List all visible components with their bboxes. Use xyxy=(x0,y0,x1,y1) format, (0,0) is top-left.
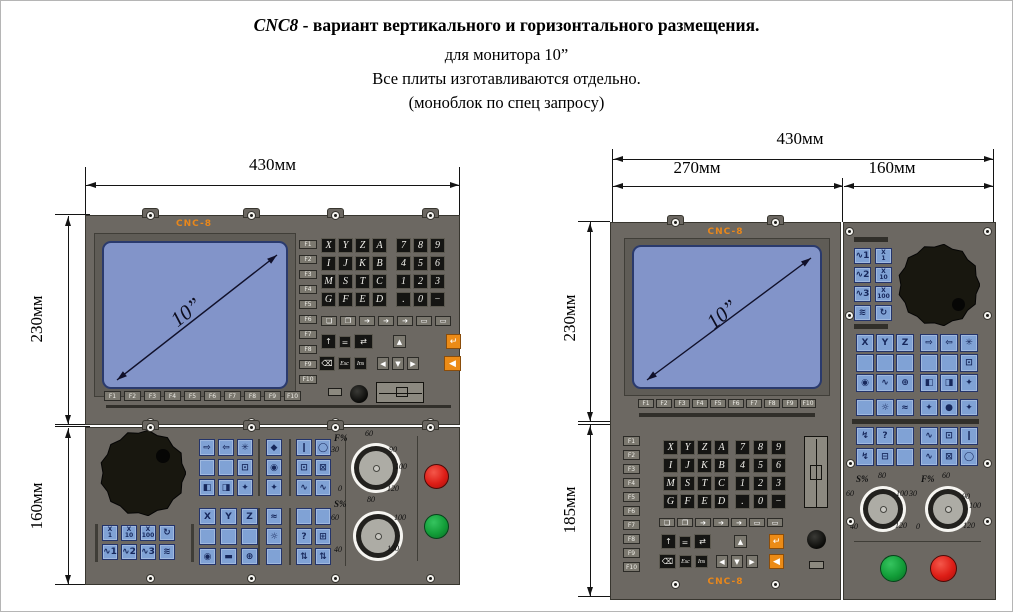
dial-tick: 80 xyxy=(878,471,886,480)
soft-key[interactable]: F10 xyxy=(284,391,301,401)
edit-key[interactable]: ➔ xyxy=(695,518,711,527)
soft-key[interactable]: F10 xyxy=(299,375,317,384)
handwheel-step-key[interactable]: X10 xyxy=(875,267,892,283)
axis-select-key[interactable]: Y xyxy=(220,508,237,525)
handwheel-step-key[interactable]: ∿2 xyxy=(121,544,137,560)
divider-bar xyxy=(854,324,888,329)
backspace-key[interactable]: ⌫ xyxy=(659,554,676,569)
group-separator xyxy=(417,436,418,561)
cursor-left-key[interactable]: ◀ xyxy=(716,555,728,568)
dim-line xyxy=(68,216,69,424)
machine-function-key[interactable]: ◉ xyxy=(266,459,282,476)
toggle-key[interactable]: ⇄ xyxy=(694,534,711,549)
edit-key[interactable]: ▭ xyxy=(749,518,765,527)
soft-key[interactable]: F5 xyxy=(184,391,201,401)
function-group-c: ❙◯⊡⊠∿∿ xyxy=(296,439,331,496)
indicator-window xyxy=(809,561,824,569)
axis-select-key[interactable]: X xyxy=(856,334,874,352)
machine-function-key[interactable]: ? xyxy=(296,528,312,545)
machine-function-key[interactable]: ☼ xyxy=(876,399,894,416)
letter-key[interactable]: T xyxy=(355,274,370,289)
handwheel-step-key[interactable]: X100 xyxy=(875,286,892,302)
cursor-right-key[interactable]: ▶ xyxy=(746,555,758,568)
machine-function-key[interactable]: ⊟ xyxy=(876,448,894,466)
machine-function-key[interactable] xyxy=(856,399,874,416)
round-button[interactable] xyxy=(350,385,368,403)
screw-icon xyxy=(331,574,340,583)
machine-function-key[interactable]: ∿ xyxy=(920,427,938,445)
number-key[interactable]: 0 xyxy=(753,494,768,509)
number-key[interactable]: 0 xyxy=(413,292,428,307)
group-separator xyxy=(258,439,260,496)
axis-select-key[interactable] xyxy=(876,354,894,372)
letter-key[interactable]: S xyxy=(338,274,353,289)
soft-key[interactable]: F5 xyxy=(299,300,317,309)
machine-function-key[interactable]: ⊠ xyxy=(940,448,958,466)
soft-key[interactable]: F4 xyxy=(299,285,317,294)
soft-key[interactable]: F8 xyxy=(299,345,317,354)
escape-key[interactable]: Esc xyxy=(679,555,692,568)
dial-tick: 90 xyxy=(389,445,397,454)
soft-key[interactable]: F5 xyxy=(623,492,640,502)
start-button[interactable] xyxy=(880,555,907,582)
equals-key[interactable]: = xyxy=(339,336,351,348)
handwheel-step-key[interactable]: X1 xyxy=(102,525,118,541)
input-key[interactable]: ◀ xyxy=(769,554,784,569)
floppy-drive[interactable] xyxy=(376,382,424,403)
arrowhead-icon xyxy=(450,182,459,188)
machine-function-key[interactable] xyxy=(199,459,215,476)
dim-height-keyboard-horizontal: 185мм xyxy=(560,473,580,547)
cursor-down-key[interactable]: ▼ xyxy=(731,555,743,568)
drive-slider xyxy=(396,387,408,397)
dial-tick: 80 xyxy=(367,495,375,504)
number-key[interactable]: 2 xyxy=(753,476,768,491)
axis-select-key[interactable]: Z xyxy=(896,334,914,352)
input-key[interactable]: ◀ xyxy=(444,356,461,371)
machine-function-key[interactable]: ⊠ xyxy=(315,459,331,476)
soft-key[interactable]: F8 xyxy=(623,534,640,544)
dial-tick: 120 xyxy=(387,484,399,493)
axis-select-key[interactable]: ∿ xyxy=(876,374,894,392)
soft-key[interactable]: F7 xyxy=(299,330,317,339)
letter-key[interactable]: Y xyxy=(680,440,695,455)
soft-key[interactable]: F9 xyxy=(299,360,317,369)
number-key[interactable]: 4 xyxy=(735,458,750,473)
letter-key[interactable]: I xyxy=(663,458,678,473)
edit-key[interactable]: ❐ xyxy=(340,316,356,326)
soft-key[interactable]: F9 xyxy=(782,399,798,408)
machine-function-key[interactable]: ❙ xyxy=(960,427,978,445)
group-separator xyxy=(258,508,260,565)
handwheel-step-key[interactable]: ↻ xyxy=(875,305,892,321)
letter-key[interactable]: C xyxy=(714,476,729,491)
horizontal-main-panel: CNC-8 10” F1F2F3F4F5F6F7F8F9F10 F1F2F3F4… xyxy=(610,222,841,600)
screw-icon xyxy=(983,311,992,320)
edit-key[interactable]: ▭ xyxy=(767,518,783,527)
number-key[interactable]: 7 xyxy=(396,238,411,253)
number-key[interactable]: 8 xyxy=(413,238,428,253)
letter-key[interactable]: A xyxy=(372,238,387,253)
axis-select-key[interactable] xyxy=(220,528,237,545)
dim-height-keyboard-vertical: 160мм xyxy=(27,469,47,543)
dial-tick: 30 xyxy=(909,489,917,498)
machine-function-key[interactable] xyxy=(266,548,282,565)
soft-key[interactable]: F1 xyxy=(638,399,654,408)
page-up-key[interactable]: ▲ xyxy=(393,335,406,348)
machine-function-key[interactable]: ⇨ xyxy=(920,334,938,352)
function-group-f: ?⊞⇅⇅ xyxy=(296,508,331,565)
axis-select-key[interactable]: ◉ xyxy=(199,548,216,565)
letter-key[interactable]: T xyxy=(697,476,712,491)
screw-icon xyxy=(983,517,992,526)
machine-function-key[interactable]: ◯ xyxy=(960,448,978,466)
machine-function-key[interactable]: ∿ xyxy=(315,479,331,496)
cursor-right-key[interactable]: ▶ xyxy=(407,357,419,370)
edit-key[interactable]: ➔ xyxy=(397,316,413,326)
soft-key[interactable]: F9 xyxy=(264,391,281,401)
handwheel-knob[interactable] xyxy=(100,430,186,521)
stop-button[interactable] xyxy=(930,555,957,582)
axis-select-key[interactable] xyxy=(199,528,216,545)
axis-select-key[interactable]: Y xyxy=(876,334,894,352)
title-line-4: (моноблок по спец запросу) xyxy=(0,91,1013,115)
brand-label: CNC-8 xyxy=(611,227,840,237)
machine-function-key[interactable]: ✦ xyxy=(920,399,938,416)
extension-line xyxy=(993,149,994,222)
dial-tick: 100 xyxy=(969,501,981,510)
handwheel-step-key[interactable]: ∿2 xyxy=(854,267,871,283)
machine-function-key[interactable]: ⇦ xyxy=(940,334,958,352)
soft-key[interactable]: F4 xyxy=(623,478,640,488)
machine-function-key[interactable]: ✳ xyxy=(960,334,978,352)
letter-key[interactable]: Z xyxy=(697,440,712,455)
screw-icon xyxy=(146,211,155,220)
number-key[interactable]: 5 xyxy=(753,458,768,473)
letter-key[interactable]: S xyxy=(680,476,695,491)
machine-function-key[interactable]: ↯ xyxy=(856,427,874,445)
letter-key[interactable]: M xyxy=(663,476,678,491)
machine-function-key[interactable]: ? xyxy=(876,427,894,445)
machine-function-key[interactable]: ☼ xyxy=(266,528,282,545)
soft-key[interactable]: F1 xyxy=(104,391,121,401)
number-key[interactable]: − xyxy=(430,292,445,307)
soft-key[interactable]: F2 xyxy=(124,391,141,401)
machine-function-key[interactable]: ⇦ xyxy=(218,439,234,456)
soft-key[interactable]: F10 xyxy=(623,562,640,572)
cursor-up-key[interactable]: ↑ xyxy=(321,334,336,349)
machine-function-key[interactable]: ⊡ xyxy=(940,427,958,445)
machine-function-key[interactable] xyxy=(296,508,312,525)
axis-select-key[interactable]: ◉ xyxy=(856,374,874,392)
arrowhead-icon xyxy=(87,182,96,188)
escape-key[interactable]: Esc xyxy=(338,357,351,370)
dim-line xyxy=(86,185,459,186)
soft-key[interactable]: F7 xyxy=(224,391,241,401)
number-key[interactable]: 3 xyxy=(771,476,786,491)
machine-function-key[interactable]: ⊡ xyxy=(960,354,978,372)
handwheel-step-key[interactable]: ≋ xyxy=(159,544,175,560)
number-key[interactable]: 1 xyxy=(735,476,750,491)
insert-key[interactable]: Ins xyxy=(695,555,708,568)
machine-function-key[interactable]: ● xyxy=(940,399,958,416)
edit-key[interactable]: ▭ xyxy=(416,316,432,326)
handwheel-step-key[interactable]: ↻ xyxy=(159,525,175,541)
soft-key[interactable]: F3 xyxy=(144,391,161,401)
machine-function-key[interactable]: ◧ xyxy=(199,479,215,496)
axis-select-key[interactable] xyxy=(896,354,914,372)
handwheel-step-key[interactable]: ∿3 xyxy=(140,544,156,560)
machine-function-key[interactable]: ∿ xyxy=(920,448,938,466)
soft-key[interactable]: F1 xyxy=(623,436,640,446)
dial-tick: 60 xyxy=(331,513,339,522)
title-model: CNC8 xyxy=(254,15,299,35)
group-separator xyxy=(854,541,981,542)
soft-key[interactable]: F7 xyxy=(623,520,640,530)
dial-label: S% xyxy=(856,474,869,484)
machine-function-key[interactable]: ◨ xyxy=(940,374,958,392)
diagram-canvas: CNC8 - вариант вертикального и горизонта… xyxy=(0,0,1013,612)
machine-function-key[interactable]: ∿ xyxy=(296,479,312,496)
soft-key[interactable]: F10 xyxy=(800,399,816,408)
machine-function-key[interactable] xyxy=(896,427,914,445)
soft-key[interactable]: F6 xyxy=(728,399,744,408)
letter-key[interactable]: E xyxy=(697,494,712,509)
letter-key[interactable]: A xyxy=(714,440,729,455)
letter-key[interactable]: Y xyxy=(338,238,353,253)
dial-tick: 60 xyxy=(365,429,373,438)
letter-key[interactable]: K xyxy=(697,458,712,473)
machine-function-key[interactable]: ✦ xyxy=(960,399,978,416)
machine-function-key[interactable] xyxy=(218,459,234,476)
letter-key[interactable]: K xyxy=(355,256,370,271)
machine-function-key[interactable]: ◯ xyxy=(315,439,331,456)
number-key[interactable]: 5 xyxy=(413,256,428,271)
cursor-down-key[interactable]: ▼ xyxy=(392,357,404,370)
dial-tick: 100 xyxy=(896,489,908,498)
axis-select-key[interactable]: ⊕ xyxy=(896,374,914,392)
dial-tick: 100 xyxy=(394,513,406,522)
machine-function-key[interactable]: ⊞ xyxy=(315,528,331,545)
extension-line xyxy=(578,596,610,597)
letter-key[interactable]: Z xyxy=(355,238,370,253)
edit-key[interactable]: ❏ xyxy=(659,518,675,527)
divider-bar xyxy=(854,237,888,242)
arrowhead-icon xyxy=(587,426,593,435)
screw-icon xyxy=(426,423,435,432)
handwheel-step-key[interactable]: ≋ xyxy=(854,305,871,321)
soft-key[interactable]: F4 xyxy=(692,399,708,408)
machine-function-key[interactable]: ⊡ xyxy=(237,459,253,476)
letter-key[interactable]: F xyxy=(680,494,695,509)
handwheel-step-key[interactable]: X1 xyxy=(875,248,892,264)
machine-function-key[interactable]: ≈ xyxy=(266,508,282,525)
brand-label: CNC-8 xyxy=(94,219,294,229)
number-key[interactable]: 1 xyxy=(396,274,411,289)
fkey-column: F1F2F3F4F5F6F7F8F9F10 xyxy=(623,436,640,572)
toggle-key[interactable]: ⇄ xyxy=(354,334,373,349)
dim-line xyxy=(590,425,591,596)
soft-key[interactable]: F5 xyxy=(710,399,726,408)
vertical-upper-panel: CNC-8 10” F1F2F3F4F5F6F7F8F9F10 XYZAIJKB… xyxy=(85,215,460,425)
function-group-a: ⇨⇦✳⊡◧◨✦ xyxy=(920,334,978,392)
edit-key[interactable]: ❏ xyxy=(321,316,337,326)
screw-icon xyxy=(146,423,155,432)
machine-function-key[interactable]: ↯ xyxy=(856,448,874,466)
screen-bezel: 10” xyxy=(624,238,830,396)
letter-key[interactable]: F xyxy=(338,292,353,307)
screw-icon xyxy=(331,423,340,432)
edit-key[interactable]: ➔ xyxy=(713,518,729,527)
edit-key[interactable]: ➔ xyxy=(359,316,375,326)
letter-key[interactable]: E xyxy=(355,292,370,307)
round-button[interactable] xyxy=(807,530,826,549)
machine-function-key[interactable]: ⇨ xyxy=(199,439,215,456)
letter-key[interactable]: G xyxy=(663,494,678,509)
insert-key[interactable]: Ins xyxy=(354,357,367,370)
axis-select-key[interactable]: X xyxy=(199,508,216,525)
soft-key[interactable]: F1 xyxy=(299,240,317,249)
handwheel-step-key[interactable]: X10 xyxy=(121,525,137,541)
number-key[interactable]: 3 xyxy=(430,274,445,289)
arrowhead-icon xyxy=(984,183,993,189)
letter-key[interactable]: J xyxy=(680,458,695,473)
axis-select-key[interactable]: ⊕ xyxy=(241,548,258,565)
number-key[interactable]: . xyxy=(735,494,750,509)
letter-key[interactable]: G xyxy=(321,292,336,307)
machine-function-key[interactable] xyxy=(940,354,958,372)
number-key[interactable]: 7 xyxy=(735,440,750,455)
axis-key-group: XYZ◉▬⊕ xyxy=(199,508,258,565)
handwheel-step-key[interactable]: ∿1 xyxy=(854,248,871,264)
soft-key[interactable]: F6 xyxy=(623,506,640,516)
soft-key[interactable]: F6 xyxy=(204,391,221,401)
title-line-1: CNC8 - вариант вертикального и горизонта… xyxy=(0,15,1013,36)
machine-function-key[interactable]: ❙ xyxy=(296,439,312,456)
soft-key[interactable]: F3 xyxy=(623,464,640,474)
machine-function-key[interactable]: ✦ xyxy=(266,479,282,496)
number-key[interactable]: 2 xyxy=(413,274,428,289)
number-key[interactable]: . xyxy=(396,292,411,307)
soft-key[interactable]: F4 xyxy=(164,391,181,401)
fkey-row: F1F2F3F4F5F6F7F8F9F10 xyxy=(104,391,301,401)
handwheel-step-key[interactable]: ∿3 xyxy=(854,286,871,302)
axis-select-key[interactable] xyxy=(241,528,258,545)
handwheel-step-key[interactable]: ∿1 xyxy=(102,544,118,560)
machine-function-key[interactable]: ✳ xyxy=(237,439,253,456)
machine-function-key[interactable]: ◧ xyxy=(920,374,938,392)
handwheel-keys: X1X10X100↻∿1∿2∿3≋ xyxy=(102,525,175,560)
axis-select-key[interactable] xyxy=(856,354,874,372)
screw-icon xyxy=(247,574,256,583)
letter-key[interactable]: X xyxy=(663,440,678,455)
backspace-key[interactable]: ⌫ xyxy=(319,356,335,371)
number-key[interactable]: 9 xyxy=(771,440,786,455)
cursor-left-key[interactable]: ◀ xyxy=(377,357,389,370)
machine-function-key[interactable] xyxy=(920,354,938,372)
function-group-e: ↯?↯⊟ xyxy=(856,427,914,466)
machine-function-key[interactable]: ≈ xyxy=(896,399,914,416)
soft-key[interactable]: F8 xyxy=(764,399,780,408)
dial-tick: 0 xyxy=(338,484,342,493)
soft-key[interactable]: F2 xyxy=(623,450,640,460)
letter-key[interactable]: B xyxy=(714,458,729,473)
edit-key[interactable]: ▭ xyxy=(435,316,451,326)
machine-function-key[interactable]: ⊡ xyxy=(296,459,312,476)
axis-select-key[interactable]: Z xyxy=(241,508,258,525)
edit-key[interactable]: ➔ xyxy=(731,518,747,527)
edit-key[interactable]: ➔ xyxy=(378,316,394,326)
divider-bar xyxy=(106,405,451,408)
number-key[interactable]: 4 xyxy=(396,256,411,271)
axis-select-key[interactable]: ▬ xyxy=(220,548,237,565)
dim-height-screen-vertical: 230мм xyxy=(27,282,47,356)
letter-keypad: XYZAIJKBMSTCGFED xyxy=(663,440,729,509)
machine-function-key[interactable] xyxy=(315,508,331,525)
soft-key[interactable]: F8 xyxy=(244,391,261,401)
letter-key[interactable]: M xyxy=(321,274,336,289)
machine-function-key[interactable]: ◨ xyxy=(218,479,234,496)
screw-icon xyxy=(983,227,992,236)
handwheel-handle xyxy=(952,298,965,311)
dim-line xyxy=(844,186,993,187)
dial-tick: 60 xyxy=(942,471,950,480)
machine-function-key[interactable]: ✦ xyxy=(237,479,253,496)
number-key[interactable]: − xyxy=(771,494,786,509)
stop-button[interactable] xyxy=(424,464,449,489)
number-key[interactable]: 6 xyxy=(430,256,445,271)
floppy-drive[interactable] xyxy=(804,436,828,508)
machine-function-key[interactable]: ✦ xyxy=(960,374,978,392)
soft-key[interactable]: F2 xyxy=(656,399,672,408)
handwheel-step-key[interactable]: X100 xyxy=(140,525,156,541)
letter-key[interactable]: B xyxy=(372,256,387,271)
letter-key[interactable]: D xyxy=(372,292,387,307)
soft-key[interactable]: F3 xyxy=(299,270,317,279)
letter-key[interactable]: D xyxy=(714,494,729,509)
edit-key[interactable]: ❐ xyxy=(677,518,693,527)
arrowhead-icon xyxy=(65,217,71,226)
page-up-key[interactable]: ▲ xyxy=(734,535,747,548)
soft-key[interactable]: F7 xyxy=(746,399,762,408)
machine-function-key[interactable] xyxy=(896,448,914,466)
handwheel-knob[interactable] xyxy=(898,244,980,331)
enter-key[interactable]: ↵ xyxy=(446,334,461,349)
equals-key[interactable]: = xyxy=(679,536,691,548)
letter-key[interactable]: X xyxy=(321,238,336,253)
letter-key[interactable]: C xyxy=(372,274,387,289)
extension-line xyxy=(578,421,610,422)
soft-key[interactable]: F3 xyxy=(674,399,690,408)
enter-key[interactable]: ↵ xyxy=(769,534,784,549)
letter-key[interactable]: J xyxy=(338,256,353,271)
soft-key[interactable]: F9 xyxy=(623,548,640,558)
screw-icon xyxy=(845,227,854,236)
start-button[interactable] xyxy=(424,514,449,539)
number-key[interactable]: 6 xyxy=(771,458,786,473)
letter-key[interactable]: I xyxy=(321,256,336,271)
number-key[interactable]: 8 xyxy=(753,440,768,455)
number-key[interactable]: 9 xyxy=(430,238,445,253)
dim-width-main-horizontal: 270мм xyxy=(627,158,767,178)
machine-function-key[interactable]: ◆ xyxy=(266,439,282,456)
soft-key[interactable]: F6 xyxy=(299,315,317,324)
arrowhead-icon xyxy=(587,587,593,596)
machine-function-key[interactable]: ⇅ xyxy=(296,548,312,565)
soft-key[interactable]: F2 xyxy=(299,255,317,264)
cursor-up-key[interactable]: ↑ xyxy=(661,534,676,549)
machine-function-key[interactable]: ⇅ xyxy=(315,548,331,565)
